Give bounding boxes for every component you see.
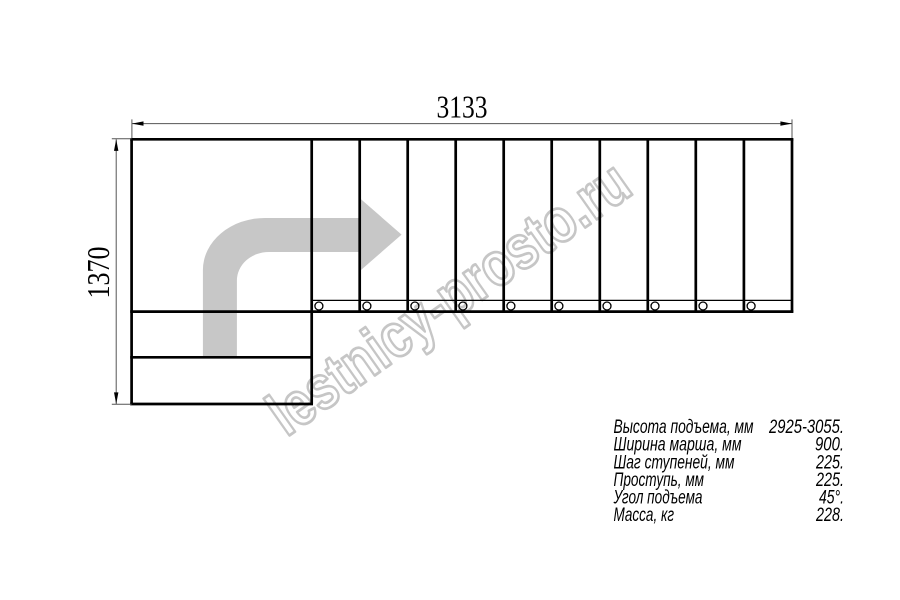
svg-text:Масса, кг: Масса, кг	[614, 505, 675, 526]
svg-text:3133: 3133	[437, 90, 488, 125]
svg-text:228.: 228.	[815, 505, 844, 526]
svg-text:1370: 1370	[80, 247, 116, 299]
